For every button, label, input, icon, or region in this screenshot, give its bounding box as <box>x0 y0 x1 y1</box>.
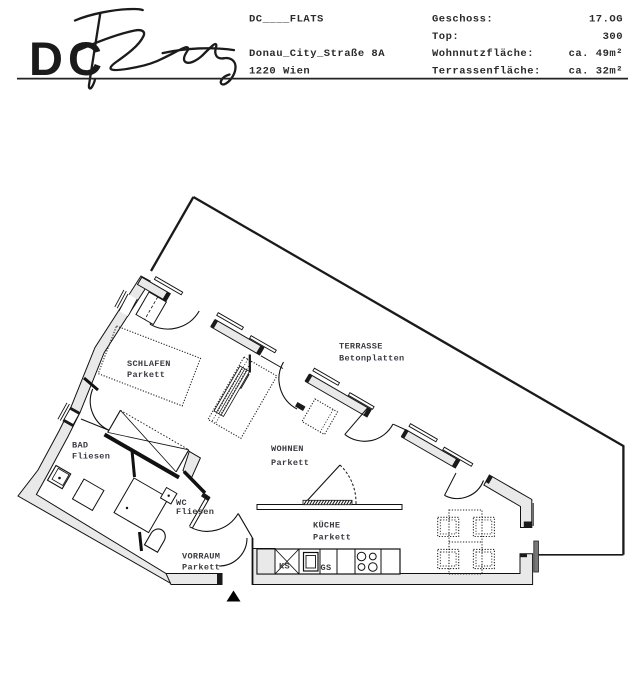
svg-text:GS: GS <box>321 563 332 573</box>
svg-text:Parkett: Parkett <box>313 533 351 543</box>
svg-text:Geschoss:: Geschoss: <box>432 14 493 26</box>
svg-text:BAD: BAD <box>72 441 88 451</box>
svg-text:Parkett: Parkett <box>127 370 165 380</box>
svg-text:Fliesen: Fliesen <box>176 507 214 517</box>
svg-text:Betonplatten: Betonplatten <box>339 354 405 364</box>
svg-text:DC____FLATS: DC____FLATS <box>249 14 324 26</box>
svg-text:TERRASSE: TERRASSE <box>339 342 383 352</box>
svg-text:SCHLAFEN: SCHLAFEN <box>127 359 171 369</box>
svg-text:1220 Wien: 1220 Wien <box>249 66 310 78</box>
svg-text:17.OG: 17.OG <box>589 14 623 26</box>
svg-text:WOHNEN: WOHNEN <box>271 444 304 454</box>
svg-text:Fliesen: Fliesen <box>72 452 110 462</box>
svg-text:VORRAUM: VORRAUM <box>182 552 220 562</box>
svg-text:300: 300 <box>603 31 623 43</box>
svg-text:KÜCHE: KÜCHE <box>313 520 340 531</box>
svg-text:ca. 49m²: ca. 49m² <box>569 48 623 60</box>
svg-text:Parkett: Parkett <box>271 458 309 468</box>
svg-text:ca. 32m²: ca. 32m² <box>569 66 623 78</box>
svg-text:Parkett: Parkett <box>182 563 220 573</box>
svg-text:Donau_City_Straße 8A: Donau_City_Straße 8A <box>249 48 385 60</box>
svg-text:Terrassenfläche:: Terrassenfläche: <box>432 66 541 78</box>
svg-text:Wohnnutzfläche:: Wohnnutzfläche: <box>432 48 534 60</box>
svg-text:KS: KS <box>279 562 290 572</box>
svg-text:Top:: Top: <box>432 31 459 43</box>
